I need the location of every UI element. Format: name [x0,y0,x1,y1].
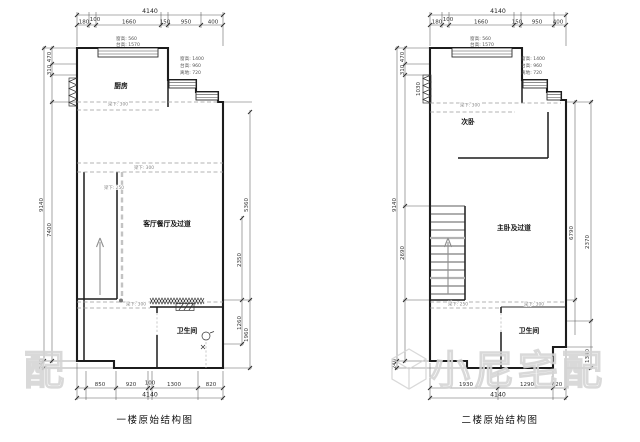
plan2-anno-window-top: 窗高: 560 [470,35,491,42]
plan1-anno-window-right: 离地: 720 [180,69,201,76]
watermark: 小尼宅配 配 [24,348,606,394]
plan1-anno-window-right: 窗高: 1400 [180,55,204,62]
plan1-room-kitchen: 厨房 [114,81,128,90]
plan1-dim-bottom-seg: 920 [126,382,137,388]
watermark-partial-text: 配 [24,348,68,394]
plan1-kitchen-window [98,48,158,57]
plan1-dimensions: 4140 180 100 1660 150 950 400 850 920 10… [39,8,252,400]
plan2-beam-note: 梁下: 300 [460,102,480,109]
plan2-anno-window-right: 台高: 960 [521,62,542,69]
plan2-dim-top-seg: 950 [532,20,543,26]
floorplan-drawing: 4140 180 100 1660 150 950 400 850 920 10… [0,0,640,442]
plan1-bathroom [150,298,214,349]
plan2-beam-note: 梁下: 300 [524,301,544,308]
plan1-dim-left: 7400 [47,223,53,237]
floorplan-sheet: 4140 180 100 1660 150 950 400 850 920 10… [0,0,640,442]
plan1-cross-mark [201,345,205,349]
plan1-dim-bottom-seg: 1300 [167,382,181,388]
plan2-beam-note: 梁下: 250 [448,301,468,308]
plan1-dim-top-seg: 950 [181,20,192,26]
plan1-dim-bottom-total: 4140 [142,392,158,399]
plan2-dim-left: 2690 [400,246,406,260]
plan1-stair-arrow [97,238,104,295]
plan1-dim-left: 9140 [39,198,45,212]
plan1-anno-window-top: 窗高: 560 [116,35,137,42]
plan2-dim-top-seg: 180 [432,20,443,26]
plan2-dim-right: 2370 [585,235,591,249]
plan1-dashed-lines [77,102,223,368]
plan2-dim-top-seg: 1660 [474,20,488,26]
plan1-beam-note: 梁下: 250 [104,184,124,191]
plan2-room-master: 主卧及过道 [497,223,531,232]
plan1-dim-top-seg: 180 [79,20,90,26]
plan1-dim-left: 310 [47,64,53,75]
plan1-dim-right: 2350 [237,253,243,267]
plan1-dim-right: 1260 [237,316,243,330]
plan1-room-bath: 卫生间 [177,326,198,335]
plan1-dim-right: 1960 [244,328,250,342]
plan2-walls [430,48,566,368]
plan2-dim-top-total: 4140 [490,8,506,15]
plan2-title: 二楼原始结构图 [461,414,538,426]
plan2-stairs [430,206,465,294]
plan1-beam-note: 梁下: 300 [126,301,146,308]
watermark-brand-text: 小尼宅配 [430,348,606,394]
plan1-beam-note: 梁下: 300 [108,101,128,108]
plan1-dim-left: 470 [47,51,53,62]
plan1-room-living: 客厅餐厅及过道 [142,219,191,228]
plan2-dim-left: 470 [400,51,406,62]
plan2-dashed-lines [430,103,566,332]
plan1-dim-bottom-seg: 100 [145,381,156,387]
plan1-dim-top-seg: 100 [90,17,101,23]
plan1-anno-window-top: 台高: 1570 [116,41,140,48]
plan2-dim-top-seg: 400 [553,20,564,26]
plan2-dim-right: 6790 [569,226,575,240]
plan1-guide-dot [119,299,123,303]
plan2-dim-left: 310 [400,64,406,75]
plan1-dim-top-seg: 150 [160,20,171,26]
plan1-dim-bottom-seg: 850 [95,382,106,388]
plan2-dimensions: 4140 180 100 1660 150 950 400 1930 1290 … [392,8,593,400]
plan2-right-window-1 [523,80,547,88]
plan1-right-window-1 [169,80,196,88]
plan1-beam-note: 梁下: 300 [134,164,154,171]
plan1-dim-right: 5360 [244,198,250,212]
plan1-dim-top-seg: 1660 [122,20,136,26]
plan2-outer-wall [430,48,566,368]
plan1-right-window-2 [196,92,218,100]
plan2-anno-window-right: 离地: 720 [521,69,542,76]
plan2-bed-window [452,48,512,57]
plan2-dim-left: 9140 [392,198,398,212]
plan2-anno-window-right: 窗高: 1400 [521,55,545,62]
plan1-toilet-drain [202,332,210,340]
plan2-dim-radiator: 1030 [416,82,422,96]
plan1-dim-top-seg: 400 [208,20,219,26]
plan1-bath-door-dash [157,313,206,368]
plan1-anno-window-right: 台高: 960 [180,62,201,69]
plan2-room-bed: 次卧 [461,117,475,126]
plan1-title: 一楼原始结构图 [116,414,193,426]
plan1-dim-top-total: 4140 [142,8,158,15]
plan2-dim-top-seg: 100 [443,17,454,23]
plan1-dim-bottom-seg: 820 [206,382,217,388]
plan2-room-bath: 卫生间 [519,326,540,335]
plan1-railing-zigzag [150,298,204,304]
plan2-dim-top-seg: 150 [512,20,523,26]
plan2-right-window-2 [547,92,561,100]
plan2-anno-window-top: 台高: 1570 [470,41,494,48]
plan1: 4140 180 100 1660 150 950 400 850 920 10… [39,8,252,426]
